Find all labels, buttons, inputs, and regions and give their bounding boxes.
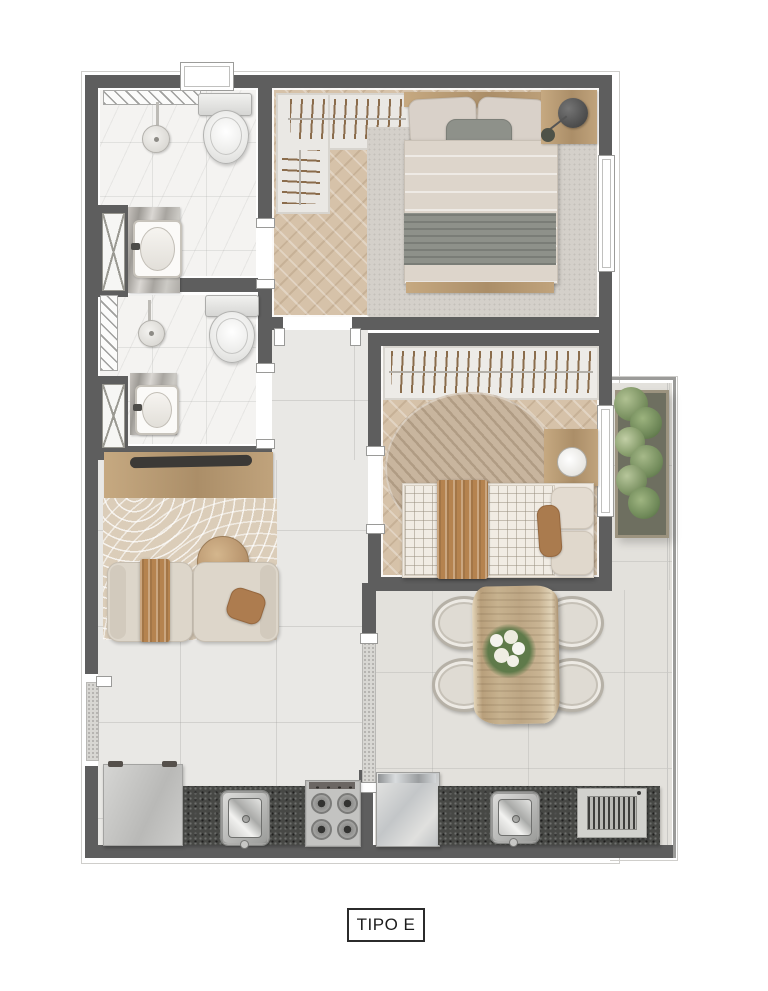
door-jamb <box>256 218 275 228</box>
wall-bedroom2-left-1 <box>368 333 381 450</box>
plan-type-text: TIPO E <box>357 915 416 935</box>
bed-blanket <box>404 213 556 265</box>
door-jamb <box>366 524 385 534</box>
washbasin-icon <box>133 220 182 278</box>
grill-slats <box>587 796 637 830</box>
sofa-throw <box>140 559 170 642</box>
faucet <box>509 838 518 847</box>
door-jamb <box>350 328 361 346</box>
wall-right-1 <box>599 75 612 157</box>
door-jamb <box>256 363 275 373</box>
laundry-sink-icon <box>491 792 539 843</box>
fridge-handle <box>108 761 123 767</box>
door-bedroom-second <box>368 450 381 528</box>
wall-divider-stub-top <box>362 583 376 640</box>
burner <box>311 819 332 840</box>
door-bathroom-ensuite <box>258 222 272 283</box>
wall-bath-vertical-1 <box>258 88 272 222</box>
burner <box>337 793 358 814</box>
door-jamb <box>96 676 112 687</box>
burner <box>311 793 332 814</box>
plan-type-label: TIPO E <box>347 908 425 942</box>
window-top <box>180 62 234 91</box>
ventilation-shaft-1 <box>102 213 125 291</box>
burner <box>337 819 358 840</box>
door-jamb <box>274 328 285 346</box>
faucet <box>133 404 142 411</box>
faucet <box>240 840 249 849</box>
closet-rail <box>299 150 301 205</box>
grill-knob <box>637 791 641 795</box>
plant <box>628 487 660 519</box>
wall-bedroom-main-bottom-right <box>352 317 612 330</box>
bed-foot-bench <box>406 282 554 293</box>
sofa-arm <box>110 565 126 639</box>
shower-head-icon <box>142 125 170 153</box>
bed-throw <box>437 480 488 579</box>
kitchen-sink-icon <box>221 791 269 845</box>
bed-quilt <box>404 485 439 576</box>
wardrobe-rail <box>389 371 593 373</box>
flower <box>512 642 525 655</box>
vertical-garden-planter <box>615 390 669 538</box>
window-bedroom-second <box>597 405 614 517</box>
balcony-rail-right <box>673 377 676 858</box>
table-lamp-icon <box>558 98 588 128</box>
wall-bedroom2-top <box>368 333 612 346</box>
shower-glass-hatch <box>103 90 201 105</box>
closet-rail <box>288 118 406 120</box>
door-jamb <box>366 446 385 456</box>
wall-top <box>85 75 612 88</box>
window-bedroom-main <box>598 155 615 272</box>
ventilation-shaft-2 <box>102 384 125 448</box>
flower-centerpiece <box>482 624 536 678</box>
stove-knobs <box>309 782 355 789</box>
closet-hangers <box>282 150 320 204</box>
balcony-rail-top <box>612 377 676 380</box>
door-jamb <box>256 279 275 289</box>
sliding-door-track <box>362 641 376 785</box>
door-jamb <box>360 633 378 644</box>
washer-lid <box>378 774 436 783</box>
bed-accent-pillow <box>536 504 563 557</box>
washing-machine <box>376 772 440 847</box>
table-lamp-icon <box>557 447 587 477</box>
entrance-threshold <box>86 682 99 761</box>
shower-head-icon <box>138 320 165 347</box>
fridge-handle <box>162 761 177 767</box>
hall-floor <box>272 330 368 460</box>
flower <box>490 634 503 647</box>
faucet <box>131 243 140 250</box>
door-jamb <box>256 439 275 449</box>
fridge <box>103 764 183 846</box>
shower-glass-hatch <box>100 295 118 371</box>
floor-plan: TIPO E <box>0 0 768 991</box>
door-bathroom-social <box>258 367 272 443</box>
flower <box>507 655 519 667</box>
plant-pot <box>541 128 555 142</box>
